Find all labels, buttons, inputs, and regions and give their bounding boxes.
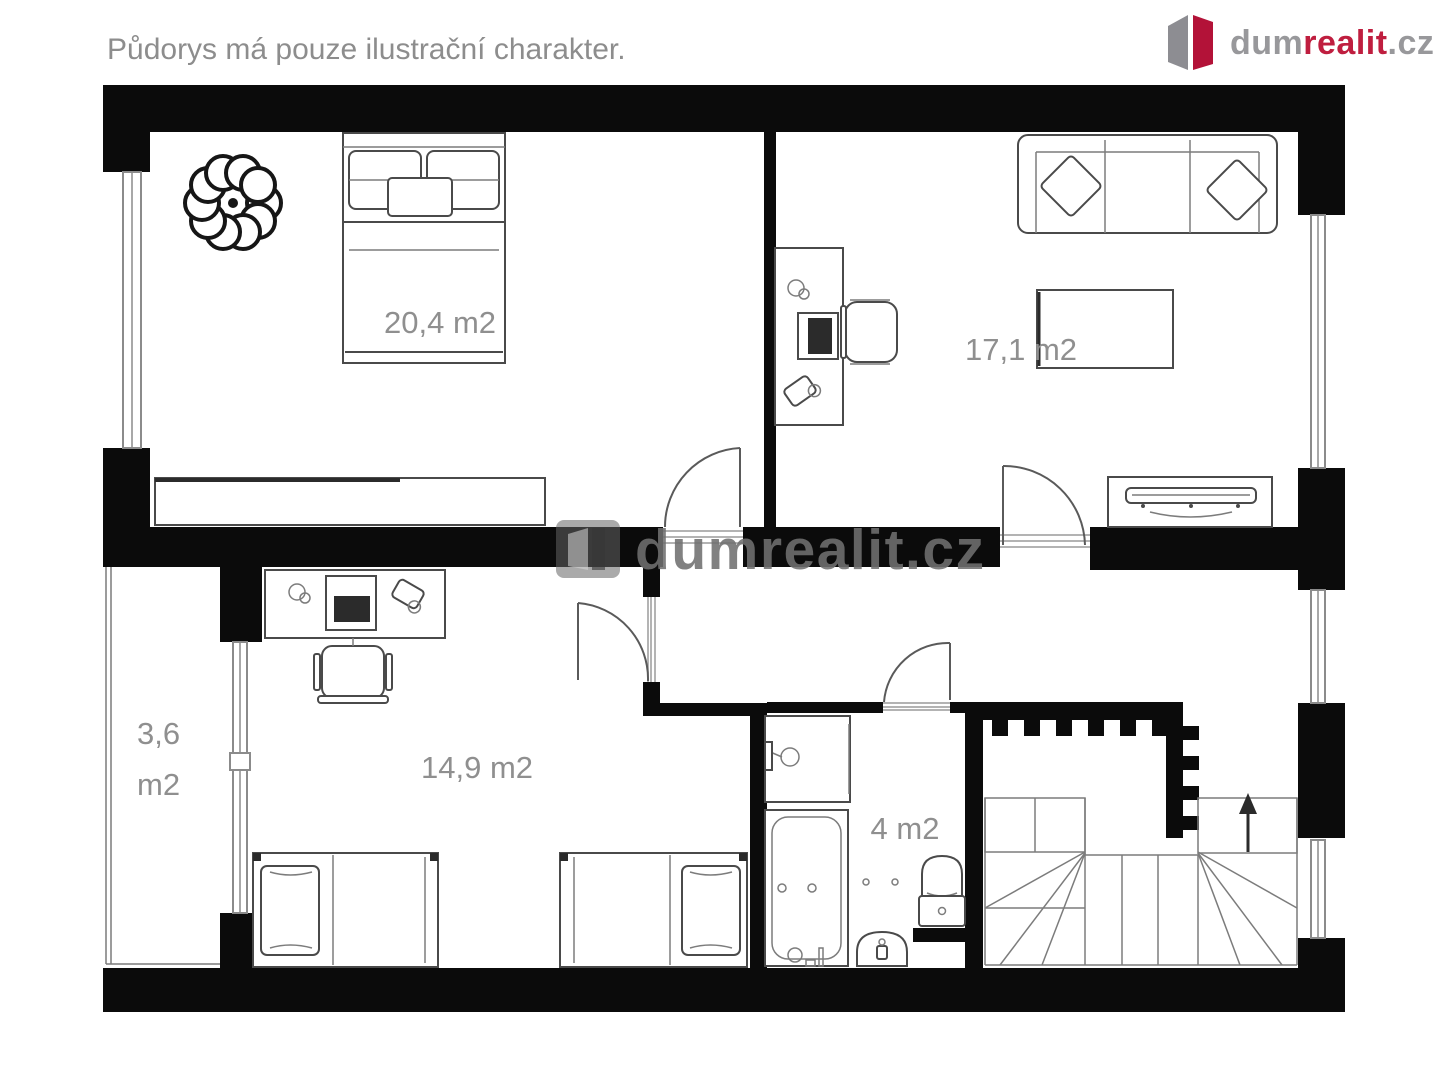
window <box>1311 215 1325 468</box>
balcony-area-unit: m2 <box>137 759 180 810</box>
door-swing <box>884 643 950 702</box>
window <box>1311 840 1325 938</box>
desk <box>265 570 445 638</box>
room-label-bathroom: 4 m2 <box>871 811 940 847</box>
balcony-area-value: 3,6 <box>137 708 180 759</box>
door-swing <box>665 448 740 527</box>
sink <box>857 932 907 966</box>
desk <box>775 248 843 425</box>
dumrealit-logo-text: dumrealit.cz <box>1230 24 1434 63</box>
door-threshold <box>1000 530 1090 553</box>
room-label-children-room: 14,9 m2 <box>421 750 533 786</box>
stair-direction-arrow <box>1239 793 1257 852</box>
room-label-bedroom: 20,4 m2 <box>384 305 496 341</box>
disclaimer-text: Půdorys má pouze ilustrační charakter. <box>107 33 626 67</box>
window <box>1311 590 1325 703</box>
logo-part-dum: dum <box>1230 24 1303 62</box>
room-label-living-room: 17,1 m2 <box>965 332 1077 368</box>
door-swing <box>578 603 648 681</box>
shower <box>765 716 850 802</box>
sofa <box>1018 135 1277 233</box>
office-chair <box>314 638 392 703</box>
door-threshold <box>883 700 950 713</box>
toilet <box>919 856 965 926</box>
french-window <box>230 642 250 913</box>
dumrealit-logo: dumrealit.cz <box>1166 12 1434 74</box>
logo-part-cz: .cz <box>1388 24 1435 62</box>
room-label-balcony: 3,6 m2 <box>137 708 180 810</box>
staircase <box>985 793 1297 965</box>
floor-plan-drawing <box>0 0 1440 1080</box>
stair-void-railing <box>983 702 1199 838</box>
dumrealit-logo-icon <box>1166 12 1220 74</box>
office-chair <box>841 300 897 364</box>
single-bed <box>253 853 438 967</box>
single-bed <box>560 853 747 967</box>
door-threshold <box>663 527 743 548</box>
wardrobe <box>155 478 545 525</box>
logo-part-realit: realit <box>1303 24 1387 62</box>
tv-cabinet <box>1108 477 1272 527</box>
floor-plan-page: Půdorys má pouze ilustrační charakter. d… <box>0 0 1440 1080</box>
window <box>123 172 141 448</box>
plant-icon <box>185 156 281 249</box>
bathtub <box>765 810 848 966</box>
